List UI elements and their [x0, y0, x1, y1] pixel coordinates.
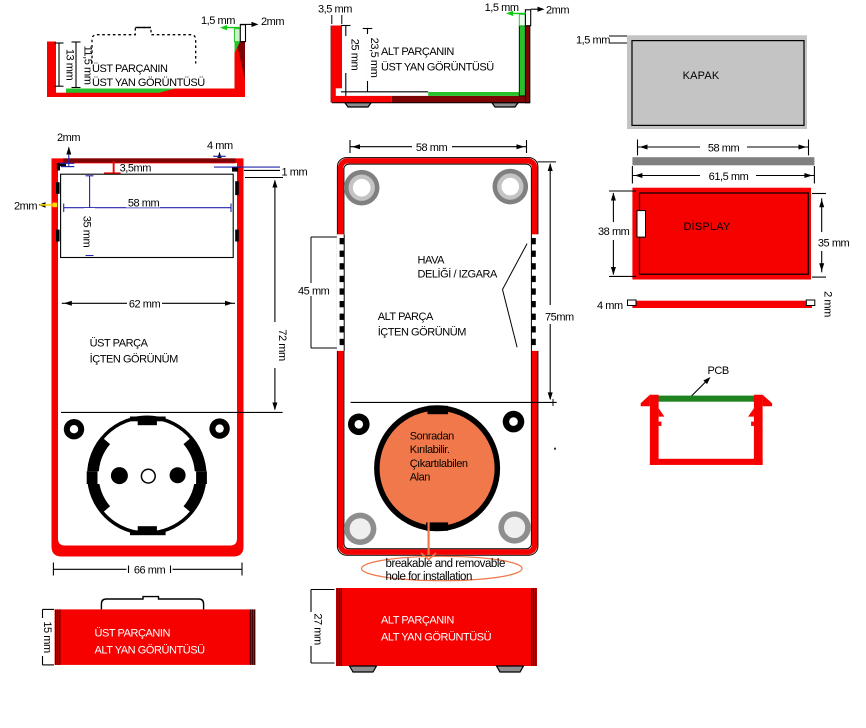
svg-text:25 mm: 25 mm: [348, 39, 360, 71]
svg-text:3,5 mm: 3,5 mm: [318, 3, 352, 15]
svg-text:ALT YAN GÖRÜNTÜSÜ: ALT YAN GÖRÜNTÜSÜ: [95, 645, 206, 657]
svg-text:ÜST PARÇANIN: ÜST PARÇANIN: [92, 63, 168, 75]
svg-text:66 mm: 66 mm: [134, 565, 166, 577]
svg-text:1,5 mm: 1,5 mm: [201, 15, 235, 27]
svg-text:2mm: 2mm: [546, 4, 569, 16]
svg-text:İÇTEN GÖRÜNÜM: İÇTEN GÖRÜNÜM: [378, 325, 467, 338]
svg-text:DİSPLAY: DİSPLAY: [683, 220, 731, 233]
svg-text:75mm: 75mm: [545, 312, 574, 324]
svg-text:35 mm: 35 mm: [818, 237, 850, 249]
svg-text:Alan: Alan: [410, 472, 431, 484]
svg-text:38 mm: 38 mm: [598, 226, 630, 238]
svg-text:13 mm: 13 mm: [64, 49, 76, 81]
svg-text:1,5 mm: 1,5 mm: [485, 2, 519, 14]
svg-text:ALT PARÇANIN: ALT PARÇANIN: [381, 615, 454, 627]
svg-text:2mm: 2mm: [14, 201, 37, 213]
svg-text:23,5 mm: 23,5 mm: [368, 38, 380, 78]
svg-text:1 mm: 1 mm: [282, 167, 308, 179]
svg-text:ÜST YAN GÖRÜNTÜSÜ: ÜST YAN GÖRÜNTÜSÜ: [381, 61, 494, 73]
svg-text:PCB: PCB: [708, 365, 729, 377]
svg-text:İÇTEN GÖRÜNÜM: İÇTEN GÖRÜNÜM: [90, 352, 179, 365]
svg-text:58 mm: 58 mm: [416, 142, 448, 154]
svg-text:45 mm: 45 mm: [298, 286, 330, 298]
svg-text:4 mm: 4 mm: [597, 300, 623, 312]
svg-text:Kırılabilir.: Kırılabilir.: [410, 444, 450, 456]
svg-text:DELİĞİ / IZGARA: DELİĞİ / IZGARA: [418, 268, 499, 281]
svg-text:27 mm: 27 mm: [312, 613, 324, 645]
svg-text:2mm: 2mm: [261, 16, 284, 28]
svg-text:ÜST PARÇA: ÜST PARÇA: [90, 338, 149, 350]
svg-text:3,5mm: 3,5mm: [120, 163, 152, 175]
svg-text:58 mm: 58 mm: [708, 142, 740, 154]
svg-text:ALT YAN GÖRÜNTÜSÜ: ALT YAN GÖRÜNTÜSÜ: [381, 632, 492, 644]
svg-text:35 mm: 35 mm: [81, 216, 93, 248]
svg-text:breakable and removable: breakable and removable: [386, 558, 505, 570]
svg-text:Sonradan: Sonradan: [410, 431, 454, 443]
svg-text:58 mm: 58 mm: [128, 197, 160, 209]
svg-text:hole for installation: hole for installation: [386, 571, 472, 583]
svg-text:ÜST PARÇANIN: ÜST PARÇANIN: [95, 628, 171, 640]
svg-text:2 mm: 2 mm: [822, 291, 834, 317]
svg-text:62 mm: 62 mm: [129, 299, 161, 311]
svg-text:15 mm: 15 mm: [41, 621, 53, 653]
svg-text:1,5 mm: 1,5 mm: [576, 35, 610, 47]
svg-text:2mm: 2mm: [57, 132, 80, 144]
svg-text:ALT PARÇA: ALT PARÇA: [378, 311, 434, 323]
svg-text:ÜST YAN GÖRÜNTÜSÜ: ÜST YAN GÖRÜNTÜSÜ: [92, 77, 205, 89]
svg-text:61,5 mm: 61,5 mm: [709, 171, 749, 183]
svg-text:KAPAK: KAPAK: [683, 70, 720, 82]
svg-text:72 mm: 72 mm: [276, 329, 288, 361]
svg-text:Çıkartılabilen: Çıkartılabilen: [410, 458, 468, 470]
svg-text:ALT PARÇANIN: ALT PARÇANIN: [381, 46, 454, 58]
svg-text:HAVA: HAVA: [418, 255, 446, 267]
svg-text:4 mm: 4 mm: [207, 140, 233, 152]
